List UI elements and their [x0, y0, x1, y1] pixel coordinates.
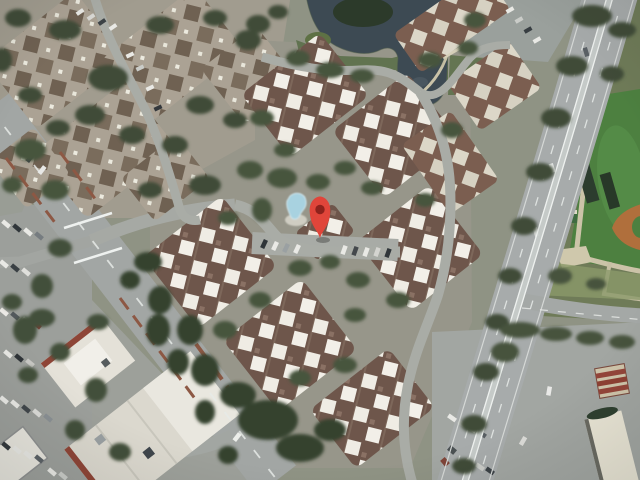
vignette-overlay [0, 0, 640, 480]
satellite-map-view[interactable] [0, 0, 640, 480]
satellite-canvas [0, 0, 640, 480]
